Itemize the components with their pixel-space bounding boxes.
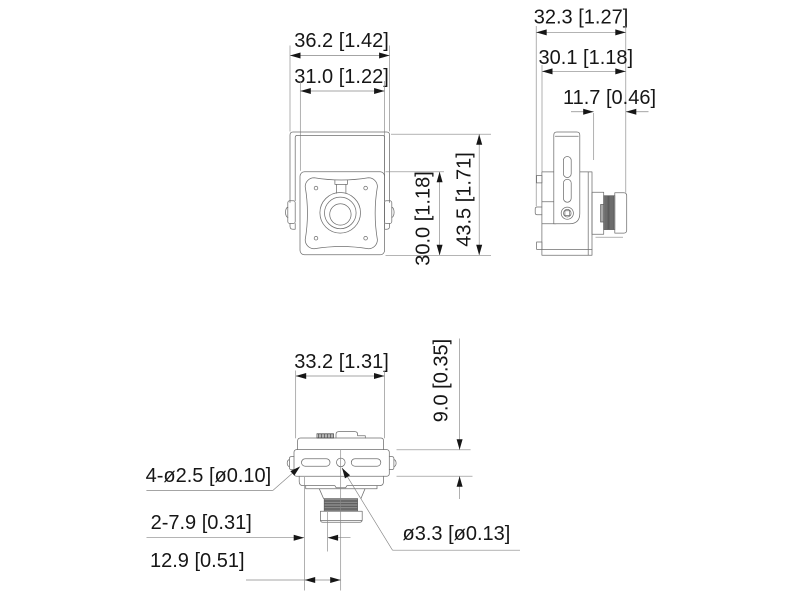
svg-text:12.9 [0.51]: 12.9 [0.51] xyxy=(150,550,245,572)
svg-text:2-7.9 [0.31]: 2-7.9 [0.31] xyxy=(151,512,252,534)
svg-text:36.2 [1.42]: 36.2 [1.42] xyxy=(294,30,389,52)
svg-text:43.5 [1.71]: 43.5 [1.71] xyxy=(454,152,476,247)
svg-text:32.3 [1.27]: 32.3 [1.27] xyxy=(534,7,629,29)
svg-text:11.7 [0.46]: 11.7 [0.46] xyxy=(563,87,656,109)
svg-text:9.0 [0.35]: 9.0 [0.35] xyxy=(431,339,453,422)
svg-text:31.0 [1.22]: 31.0 [1.22] xyxy=(294,66,389,88)
svg-text:30.1 [1.18]: 30.1 [1.18] xyxy=(539,47,634,69)
svg-text:30.0 [1.18]: 30.0 [1.18] xyxy=(412,171,434,266)
svg-text:33.2 [1.31]: 33.2 [1.31] xyxy=(294,351,389,373)
svg-text:4-ø2.5 [ø0.10]: 4-ø2.5 [ø0.10] xyxy=(146,465,272,487)
svg-text:ø3.3 [ø0.13]: ø3.3 [ø0.13] xyxy=(403,523,511,545)
